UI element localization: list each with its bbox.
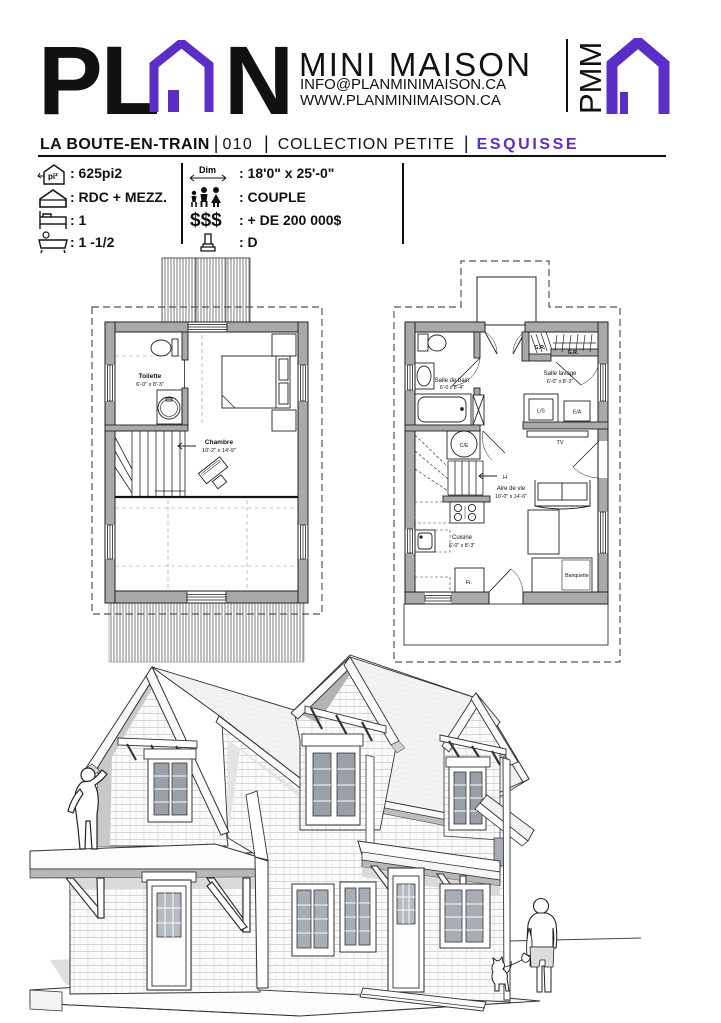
svg-text:G.R.: G.R. bbox=[568, 350, 579, 356]
svg-text:10'-0" x 14'-6": 10'-0" x 14'-6" bbox=[495, 494, 527, 500]
svg-text:Dim: Dim bbox=[199, 165, 216, 175]
svg-text:L/S: L/S bbox=[537, 409, 545, 415]
svg-text:Cuisine: Cuisine bbox=[452, 535, 473, 541]
svg-text:TV: TV bbox=[556, 440, 563, 446]
svg-text:G.R.: G.R. bbox=[535, 345, 546, 351]
svg-text:pi²: pi² bbox=[48, 172, 58, 181]
svg-text:Salle lavage: Salle lavage bbox=[544, 371, 577, 377]
svg-text:H: H bbox=[503, 475, 507, 481]
svg-text:Chambre: Chambre bbox=[205, 439, 234, 446]
svg-text:E/A: E/A bbox=[573, 410, 582, 416]
svg-text:6'-0" x 8'-3": 6'-0" x 8'-3" bbox=[449, 543, 475, 549]
svg-text:Fr.: Fr. bbox=[466, 580, 473, 586]
svg-text:10'-2" x 14'-9": 10'-2" x 14'-9" bbox=[202, 448, 236, 454]
svg-text:Aire de vie: Aire de vie bbox=[497, 486, 526, 492]
svg-text:Toilette: Toilette bbox=[139, 373, 162, 380]
svg-text:C/E: C/E bbox=[460, 443, 469, 449]
svg-text:6'-0 x 8'-4": 6'-0 x 8'-4" bbox=[440, 385, 464, 391]
svg-text:6'-0" x 8'-3": 6'-0" x 8'-3" bbox=[136, 382, 164, 388]
svg-text:6'-0" x 8'-3": 6'-0" x 8'-3" bbox=[547, 379, 573, 385]
svg-text:Salle de bain: Salle de bain bbox=[435, 378, 470, 384]
svg-text:Banquette: Banquette bbox=[565, 573, 589, 579]
